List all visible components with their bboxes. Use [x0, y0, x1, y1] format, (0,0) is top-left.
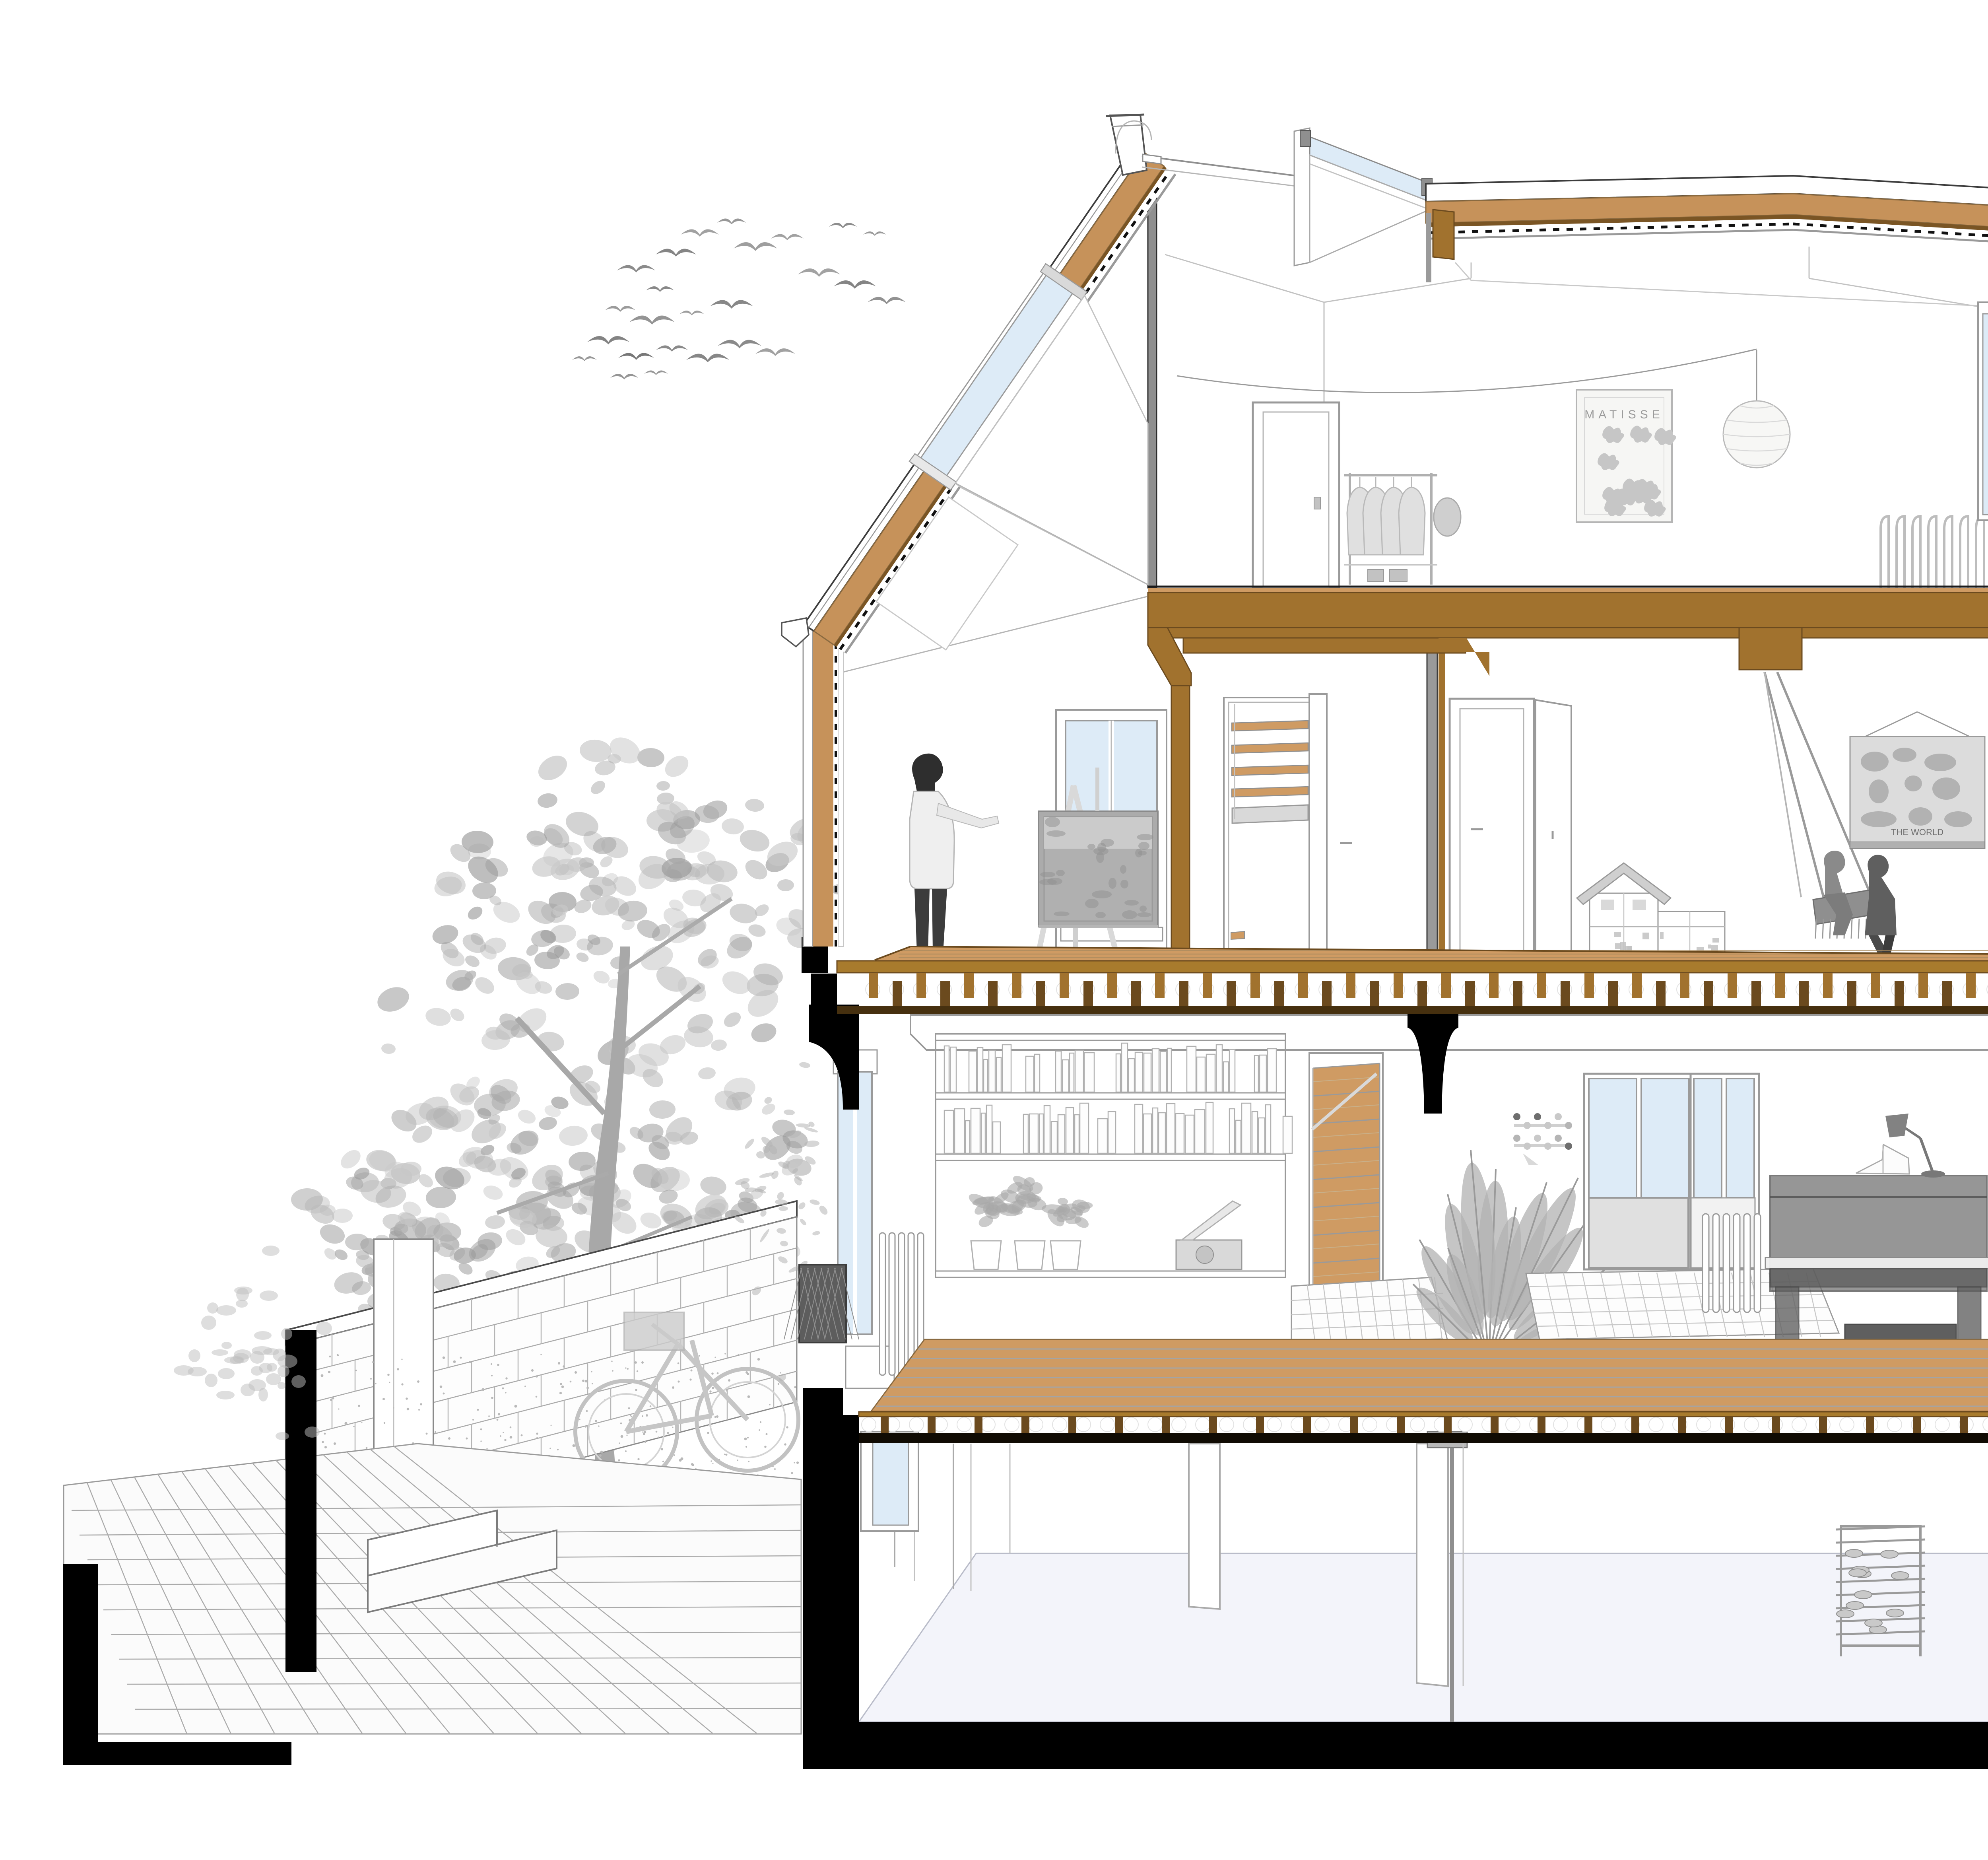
svg-text:MATISSE: MATISSE: [1584, 408, 1664, 421]
svg-text:THE WORLD: THE WORLD: [1891, 827, 1943, 837]
